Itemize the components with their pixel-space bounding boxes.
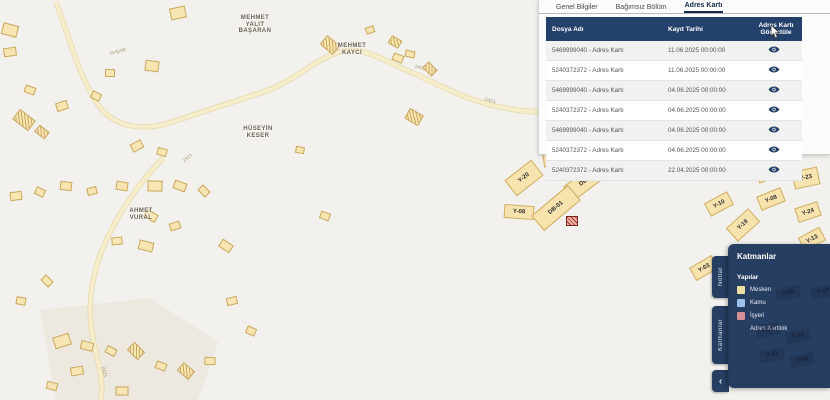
- legend-item-0[interactable]: Mesken: [737, 286, 821, 294]
- side-tab-notlar-label: Notlar: [718, 267, 724, 286]
- side-tab-notlar[interactable]: Notlar: [712, 256, 729, 298]
- file-name-cell: 5240372372 - Adres Kartı: [546, 101, 662, 121]
- file-name-cell: 5240372372 - Adres Kartı: [546, 61, 662, 81]
- legend-item-adres-kartlilik[interactable]: Adres Kartlılık: [737, 326, 821, 332]
- detail-tabs: Genel BilgilerBağımsız BölümAdres Kartı: [539, 0, 830, 14]
- map-parcel-y-08[interactable]: Y-08: [504, 204, 535, 220]
- eye-icon: [768, 69, 780, 76]
- file-name-cell: 5469999040 - Adres Kartı: [546, 41, 662, 61]
- layers-panel-title: Katmanlar: [737, 252, 821, 261]
- tab-2[interactable]: Adres Kartı: [684, 0, 724, 13]
- legend-item-1[interactable]: Kamu: [737, 299, 821, 307]
- view-address-card-button[interactable]: [768, 45, 780, 54]
- eye-icon: [768, 149, 780, 156]
- table-row: 5240372372 - Adres Kartı22.04.2025 00:00…: [546, 161, 802, 181]
- table-row: 5240372372 - Adres Kartı04.06.2025 00:00…: [546, 141, 802, 161]
- owner-name-label: MEHMET YALIT BAŞARAN: [239, 15, 272, 35]
- table-row: 5469999040 - Adres Kartı04.06.2025 00:00…: [546, 121, 802, 141]
- table-header-row: Dosya Adı Kayıt Tarihi Adres Kartı Görün…: [546, 17, 802, 41]
- view-cell: [746, 41, 802, 61]
- table-row: 5240372372 - Adres Kartı04.06.2025 00:00…: [546, 101, 802, 121]
- view-address-card-button[interactable]: [768, 165, 780, 174]
- building[interactable]: [60, 181, 73, 191]
- eye-icon: [768, 49, 780, 56]
- column-header-view: Adres Kartı Görüntüle: [746, 17, 802, 41]
- owner-name-label: AHMET VURAL: [129, 208, 152, 221]
- column-header-date: Kayıt Tarihi: [662, 17, 746, 41]
- record-date-cell: 11.06.2025 00:00:00: [662, 41, 746, 61]
- address-card-table-body: 5469999040 - Adres Kartı11.06.2025 00:00…: [546, 41, 802, 181]
- legend-label: İşyeri: [750, 313, 764, 319]
- gis-application: Y-21Y-20DB-02Y-08DB-01Y-22Y-23Y-10Y-08Y-…: [0, 0, 830, 400]
- file-name-cell: 5469999040 - Adres Kartı: [546, 121, 662, 141]
- view-address-card-button[interactable]: [768, 145, 780, 154]
- building[interactable]: [115, 181, 128, 192]
- owner-name-label: HÜSEYİN KESER: [243, 126, 272, 139]
- legend-swatch-icon: [737, 286, 745, 294]
- layers-section-yapilar: Yapılar: [737, 274, 821, 281]
- file-name-cell: 5469999040 - Adres Kartı: [546, 81, 662, 101]
- building[interactable]: [15, 296, 26, 306]
- building[interactable]: [3, 47, 17, 58]
- side-tab-katmanlar[interactable]: Katmanlar: [712, 306, 729, 364]
- legend-items: MeskenKamuİşyeri: [737, 286, 821, 320]
- file-name-cell: 5240372372 - Adres Kartı: [546, 161, 662, 181]
- record-date-cell: 04.06.2025 00:00:00: [662, 141, 746, 161]
- view-cell: [746, 101, 802, 121]
- legend-label: Kamu: [750, 300, 766, 306]
- owner-name-label: MEHMET KAYCI: [338, 43, 366, 56]
- building[interactable]: [295, 146, 305, 154]
- column-header-file: Dosya Adı: [546, 17, 662, 41]
- view-cell: [746, 141, 802, 161]
- view-address-card-button[interactable]: [768, 85, 780, 94]
- record-date-cell: 22.04.2025 00:00:00: [662, 161, 746, 181]
- view-address-card-button[interactable]: [768, 125, 780, 134]
- building[interactable]: [105, 69, 115, 77]
- legend-item-2[interactable]: İşyeri: [737, 312, 821, 320]
- table-row: 5469999040 - Adres Kartı11.06.2025 00:00…: [546, 41, 802, 61]
- eye-icon: [768, 169, 780, 176]
- address-card-table: Dosya Adı Kayıt Tarihi Adres Kartı Görün…: [546, 17, 802, 181]
- building[interactable]: [111, 236, 123, 245]
- view-cell: [746, 81, 802, 101]
- record-date-cell: 04.06.2025 00:00:00: [662, 121, 746, 141]
- building-isyeri[interactable]: [566, 216, 578, 226]
- eye-icon: [768, 129, 780, 136]
- chevron-left-icon: ‹: [719, 376, 722, 387]
- record-date-cell: 04.06.2025 00:00:00: [662, 81, 746, 101]
- tab-0[interactable]: Genel Bilgiler: [555, 2, 599, 13]
- table-row: 5469999040 - Adres Kartı04.06.2025 00:00…: [546, 81, 802, 101]
- eye-icon: [768, 109, 780, 116]
- view-cell: [746, 161, 802, 181]
- legend-swatch-icon: [737, 299, 745, 307]
- eye-icon: [768, 89, 780, 96]
- table-row: 5240372372 - Adres Kartı11.06.2025 00:00…: [546, 61, 802, 81]
- view-address-card-button[interactable]: [768, 105, 780, 114]
- tab-1[interactable]: Bağımsız Bölüm: [615, 2, 668, 13]
- detail-panel: Genel BilgilerBağımsız BölümAdres Kartı …: [538, 0, 830, 155]
- record-date-cell: 04.06.2025 00:00:00: [662, 101, 746, 121]
- view-cell: [746, 61, 802, 81]
- view-address-card-button[interactable]: [768, 65, 780, 74]
- view-cell: [746, 121, 802, 141]
- file-name-cell: 5240372372 - Adres Kartı: [546, 141, 662, 161]
- collapse-panel-button[interactable]: ‹: [712, 370, 729, 392]
- building[interactable]: [116, 387, 129, 396]
- record-date-cell: 11.06.2025 00:00:00: [662, 61, 746, 81]
- legend-swatch-icon: [737, 312, 745, 320]
- building[interactable]: [147, 180, 162, 192]
- layers-panel: Katmanlar Yapılar MeskenKamuİşyeri Adres…: [728, 244, 830, 388]
- legend-label: Mesken: [750, 287, 771, 293]
- side-tab-katmanlar-label: Katmanlar: [718, 319, 724, 351]
- building[interactable]: [9, 191, 22, 202]
- building[interactable]: [204, 357, 215, 365]
- building[interactable]: [144, 60, 159, 73]
